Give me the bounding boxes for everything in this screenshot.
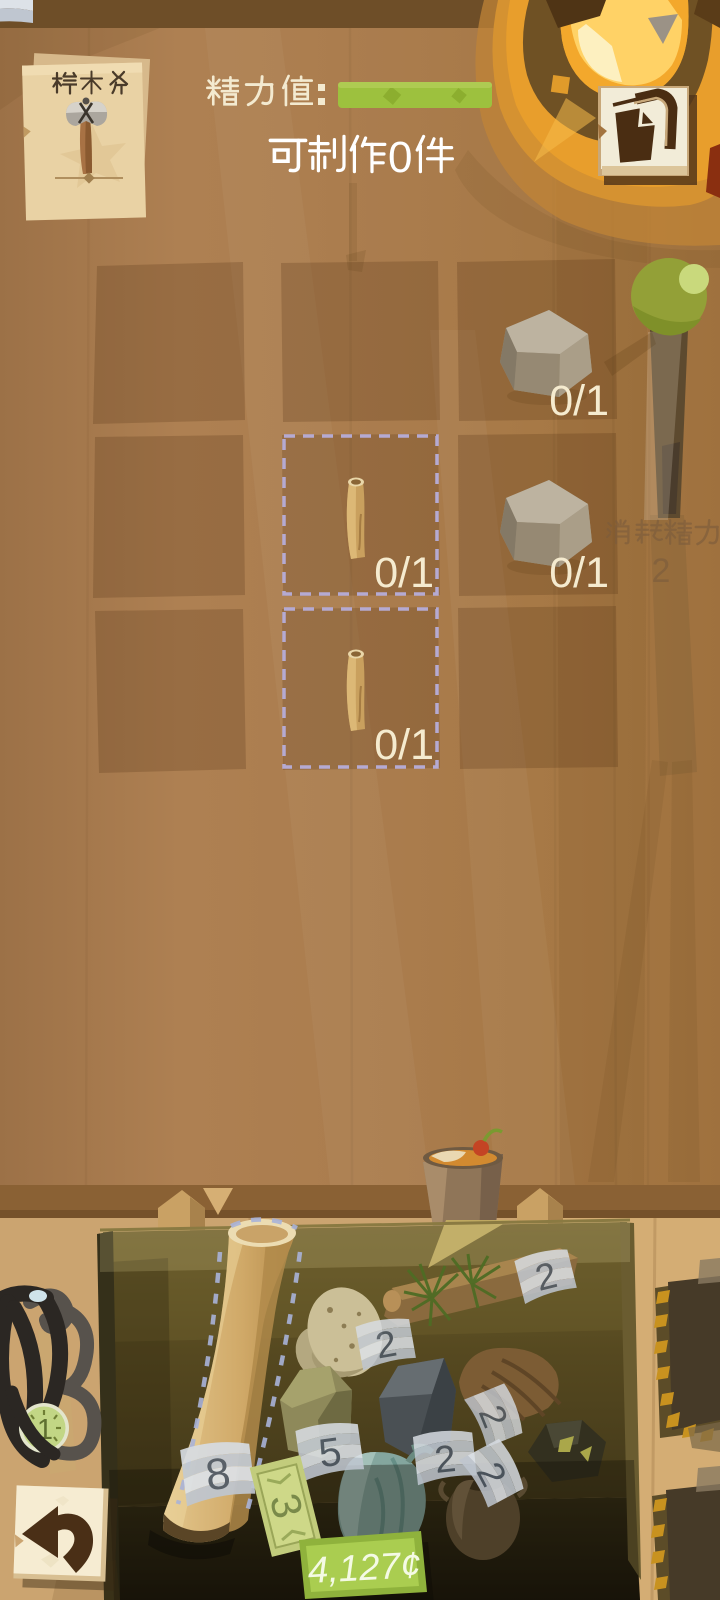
svg-text:0: 0: [388, 133, 412, 182]
svg-text:0/1: 0/1: [374, 721, 434, 769]
svg-text:2: 2: [433, 1438, 458, 1482]
svg-text:0/1: 0/1: [549, 377, 609, 425]
svg-text:0/1: 0/1: [374, 549, 434, 597]
svg-text:2: 2: [652, 552, 671, 590]
svg-text:0/1: 0/1: [549, 549, 609, 597]
svg-text:4,127¢: 4,127¢: [307, 1544, 422, 1591]
